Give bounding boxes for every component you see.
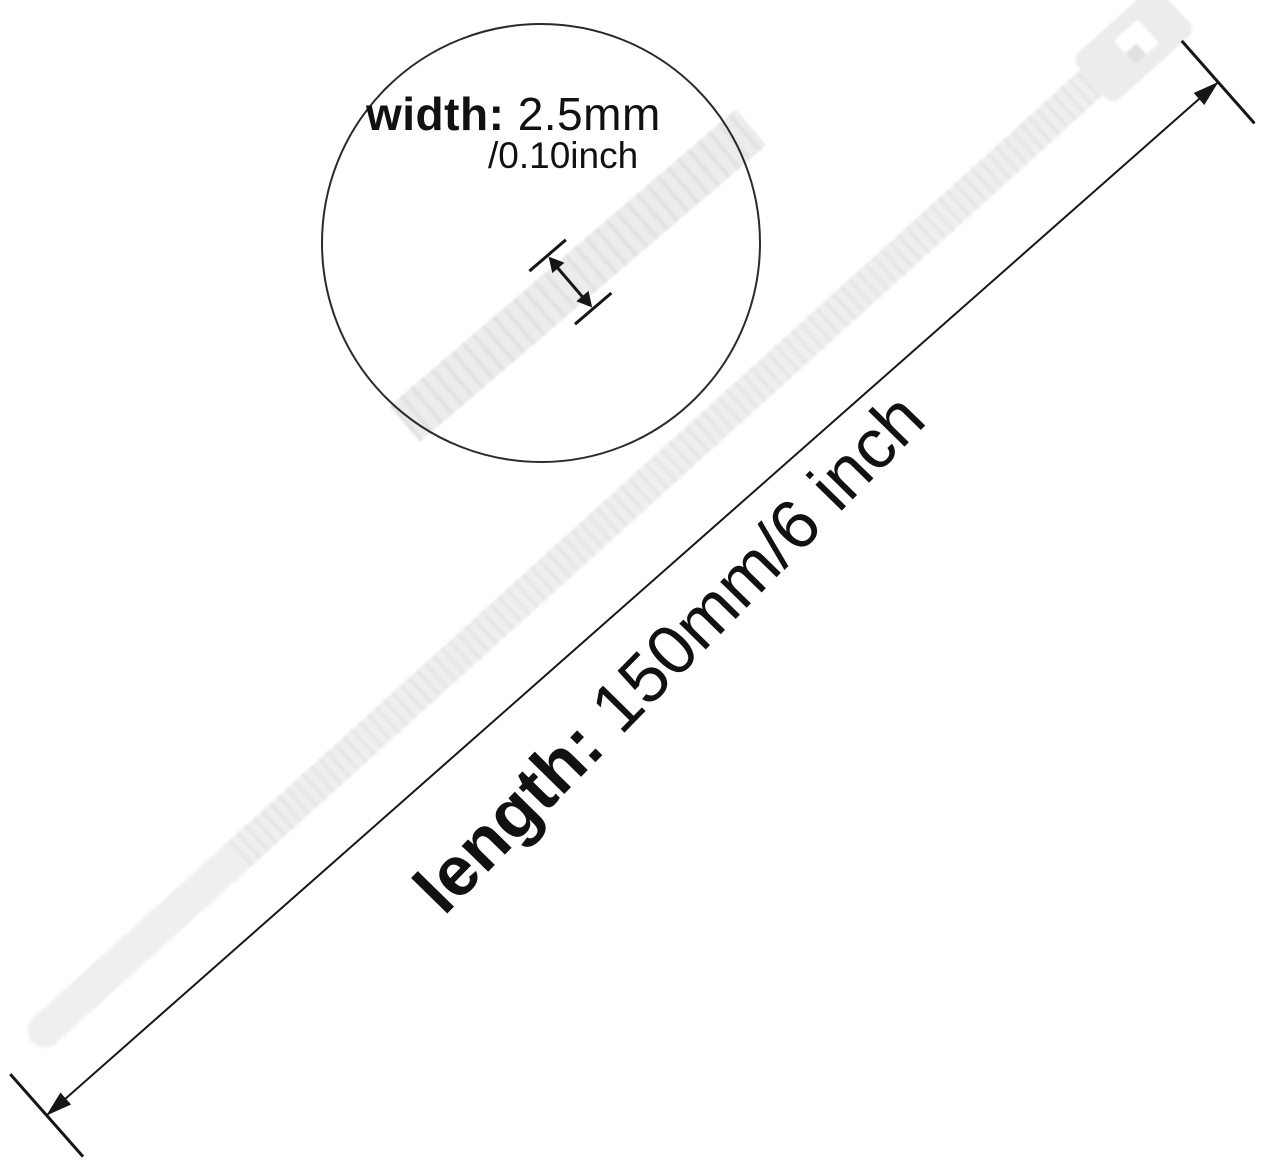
width-callout-sublabel: /0.10inch [488, 136, 638, 176]
width-label-text: width: [366, 88, 504, 140]
width-value-text: 2.5mm [518, 88, 661, 140]
length-extension-tick-end [1181, 40, 1256, 124]
width-callout-label: width: 2.5mm [366, 88, 661, 140]
product-diagram: width: 2.5mm /0.10inch length: 150mm/6 i… [0, 0, 1270, 1165]
length-label-text: length: [399, 706, 618, 927]
length-extension-tick-start [9, 1073, 84, 1157]
